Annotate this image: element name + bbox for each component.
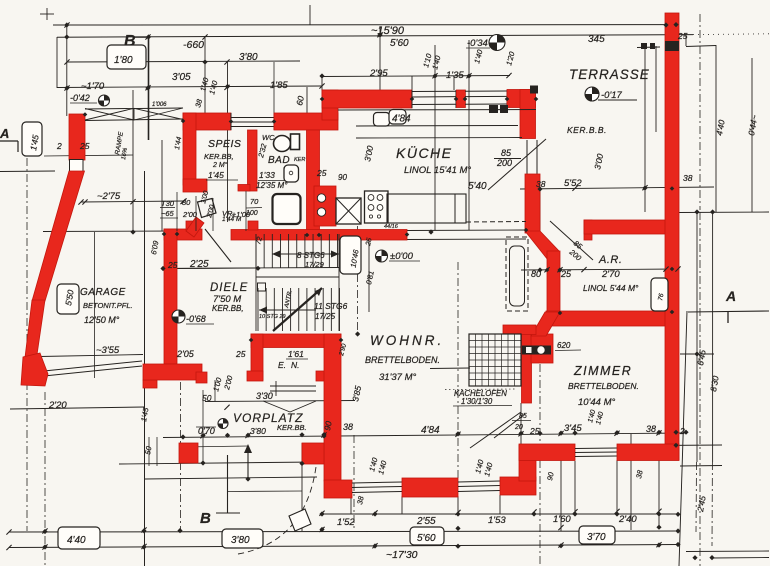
svg-text:25: 25: [560, 269, 572, 279]
svg-text:38: 38: [646, 424, 656, 434]
svg-text:200: 200: [496, 158, 512, 168]
svg-text:620: 620: [557, 341, 571, 350]
svg-text:~15'90: ~15'90: [371, 25, 405, 37]
svg-text:5'52: 5'52: [564, 178, 582, 189]
svg-text:1'80: 1'80: [114, 55, 133, 66]
svg-text:3'45: 3'45: [564, 423, 582, 434]
svg-text:5'60: 5'60: [390, 38, 409, 49]
svg-text:A.R.: A.R.: [598, 254, 622, 266]
svg-text:BETONIT.PFL.: BETONIT.PFL.: [83, 301, 133, 310]
svg-text:345: 345: [588, 34, 605, 45]
svg-text:~65: ~65: [161, 209, 175, 218]
svg-text:17/29: 17/29: [305, 260, 325, 269]
svg-text:8 STG6: 8 STG6: [297, 251, 325, 260]
svg-text:25: 25: [167, 260, 178, 270]
svg-text:BRETTELBODEN.: BRETTELBODEN.: [568, 381, 639, 391]
svg-text:2'55: 2'55: [416, 516, 436, 527]
svg-text:80: 80: [531, 269, 541, 279]
svg-text:25: 25: [316, 168, 327, 178]
svg-text:38: 38: [683, 173, 693, 183]
svg-text:-660: -660: [183, 39, 204, 51]
svg-text:1'33: 1'33: [259, 170, 275, 180]
svg-text:5'60: 5'60: [417, 533, 436, 544]
svg-text:-0'17: -0'17: [601, 90, 623, 101]
svg-text:DIELE: DIELE: [210, 282, 248, 294]
svg-text:KER.BB,: KER.BB,: [212, 304, 244, 313]
svg-text:0'70: 0'70: [198, 426, 215, 436]
svg-text:T30: T30: [161, 199, 175, 208]
svg-text:70: 70: [250, 197, 259, 206]
svg-text:3'05: 3'05: [172, 72, 191, 83]
svg-text:100: 100: [246, 210, 258, 217]
svg-text:1'53: 1'53: [488, 515, 506, 526]
svg-text:3'80: 3'80: [250, 426, 266, 436]
svg-text:25: 25: [677, 31, 688, 41]
svg-text:2'05: 2'05: [176, 349, 195, 359]
svg-text:GARAGE: GARAGE: [80, 287, 126, 298]
svg-text:38: 38: [536, 179, 546, 189]
svg-text:4'84: 4'84: [392, 114, 411, 125]
svg-text:A: A: [0, 126, 9, 141]
svg-text:90: 90: [338, 173, 347, 182]
svg-text:~3'55: ~3'55: [96, 345, 120, 356]
svg-text:2'40: 2'40: [618, 514, 637, 525]
svg-text:31'37 M°: 31'37 M°: [379, 372, 417, 383]
svg-text:B: B: [200, 510, 211, 527]
svg-text:BAD: BAD: [268, 155, 290, 166]
svg-text:LINOL 15'41 M°: LINOL 15'41 M°: [404, 165, 471, 176]
svg-text:-0'42: -0'42: [70, 93, 90, 103]
svg-text:TERRASSE: TERRASSE: [569, 67, 650, 82]
svg-text:SPEIS: SPEIS: [208, 138, 241, 150]
svg-text:1'85: 1'85: [270, 80, 288, 91]
svg-text:1'52: 1'52: [337, 517, 355, 528]
svg-text:25: 25: [529, 426, 540, 436]
svg-text:KER: KER: [294, 157, 305, 163]
svg-text:3'80: 3'80: [239, 52, 258, 63]
svg-text:12'50 M°: 12'50 M°: [84, 315, 120, 325]
svg-text:-0'68: -0'68: [186, 314, 206, 324]
svg-text:KÜCHE: KÜCHE: [396, 144, 453, 161]
svg-text:±0'00: ±0'00: [390, 251, 414, 262]
svg-text:10'44 M°: 10'44 M°: [578, 397, 616, 408]
svg-text:17/25: 17/25: [315, 312, 336, 321]
svg-text:KER.BB.: KER.BB.: [277, 423, 307, 432]
svg-text:2: 2: [56, 141, 62, 151]
svg-text:20: 20: [514, 424, 523, 431]
svg-text:4'84: 4'84: [421, 425, 440, 436]
svg-text:90: 90: [322, 420, 334, 431]
svg-text:3'80: 3'80: [231, 535, 250, 546]
svg-text:BRETTELBODEN.: BRETTELBODEN.: [365, 355, 440, 365]
svg-text:2: 2: [679, 426, 685, 436]
svg-text:4'40: 4'40: [67, 535, 86, 546]
svg-text:WC: WC: [262, 133, 275, 142]
svg-text:2'00: 2'00: [182, 210, 198, 219]
svg-text:-0'34: -0'34: [467, 38, 488, 49]
svg-text:3'70: 3'70: [587, 532, 606, 543]
svg-text:ZIMMER: ZIMMER: [573, 364, 632, 378]
svg-text:2 M°: 2 M°: [212, 161, 228, 169]
svg-text:~1'70: ~1'70: [81, 81, 105, 92]
svg-text:3'30: 3'30: [256, 391, 273, 401]
svg-text:LINOL 5'44 M°: LINOL 5'44 M°: [583, 283, 639, 293]
svg-text:1'60: 1'60: [553, 514, 571, 525]
svg-text:~17'30: ~17'30: [386, 549, 418, 561]
svg-text:KER.BB,: KER.BB,: [204, 152, 234, 161]
svg-text:85: 85: [501, 148, 512, 158]
svg-text:1'30/1'30: 1'30/1'30: [461, 397, 493, 406]
svg-text:1'35: 1'35: [446, 70, 464, 81]
svg-text:N.: N.: [291, 360, 300, 370]
svg-text:85: 85: [519, 413, 527, 420]
svg-text:E.: E.: [278, 360, 286, 370]
svg-text:50: 50: [202, 393, 212, 403]
svg-text:2'20: 2'20: [48, 400, 67, 411]
svg-text:11 STG6: 11 STG6: [314, 301, 348, 311]
svg-text:12'35 M°: 12'35 M°: [256, 181, 288, 190]
svg-text:38: 38: [343, 422, 353, 432]
svg-text:5'40: 5'40: [468, 181, 487, 192]
svg-text:44/16: 44/16: [384, 224, 399, 230]
svg-text:1'45: 1'45: [208, 170, 224, 180]
svg-text:A: A: [725, 288, 736, 304]
svg-text:KER.B.B.: KER.B.B.: [567, 125, 607, 135]
svg-text:1'006: 1'006: [152, 102, 167, 108]
svg-text:25: 25: [235, 349, 246, 359]
svg-text:80: 80: [182, 198, 191, 207]
svg-text:~2'75: ~2'75: [97, 191, 121, 202]
svg-text:2'70: 2'70: [601, 269, 620, 280]
svg-text:2'25: 2'25: [189, 259, 209, 270]
svg-text:WOHNR.: WOHNR.: [370, 333, 444, 348]
svg-text:10 STG 29: 10 STG 29: [259, 314, 286, 320]
svg-text:1'61: 1'61: [288, 349, 304, 359]
svg-text:25: 25: [79, 141, 90, 151]
svg-text:2'95: 2'95: [369, 68, 388, 79]
